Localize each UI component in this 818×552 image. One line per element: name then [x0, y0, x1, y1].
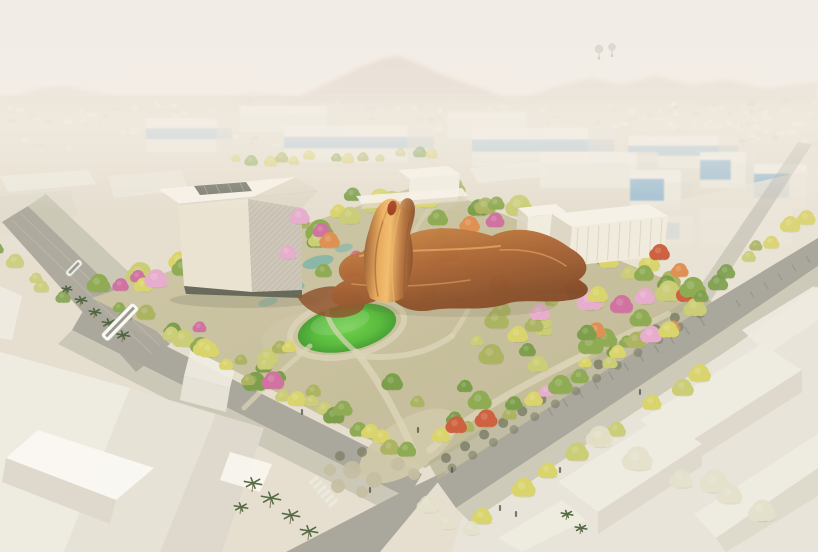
aerial-rendering: Aerial architectural rendering of a city… [0, 0, 818, 552]
warm-tint [0, 0, 818, 552]
haze-overlay [0, 0, 818, 552]
rendering-stage: Aerial architectural rendering of a city… [0, 0, 818, 552]
